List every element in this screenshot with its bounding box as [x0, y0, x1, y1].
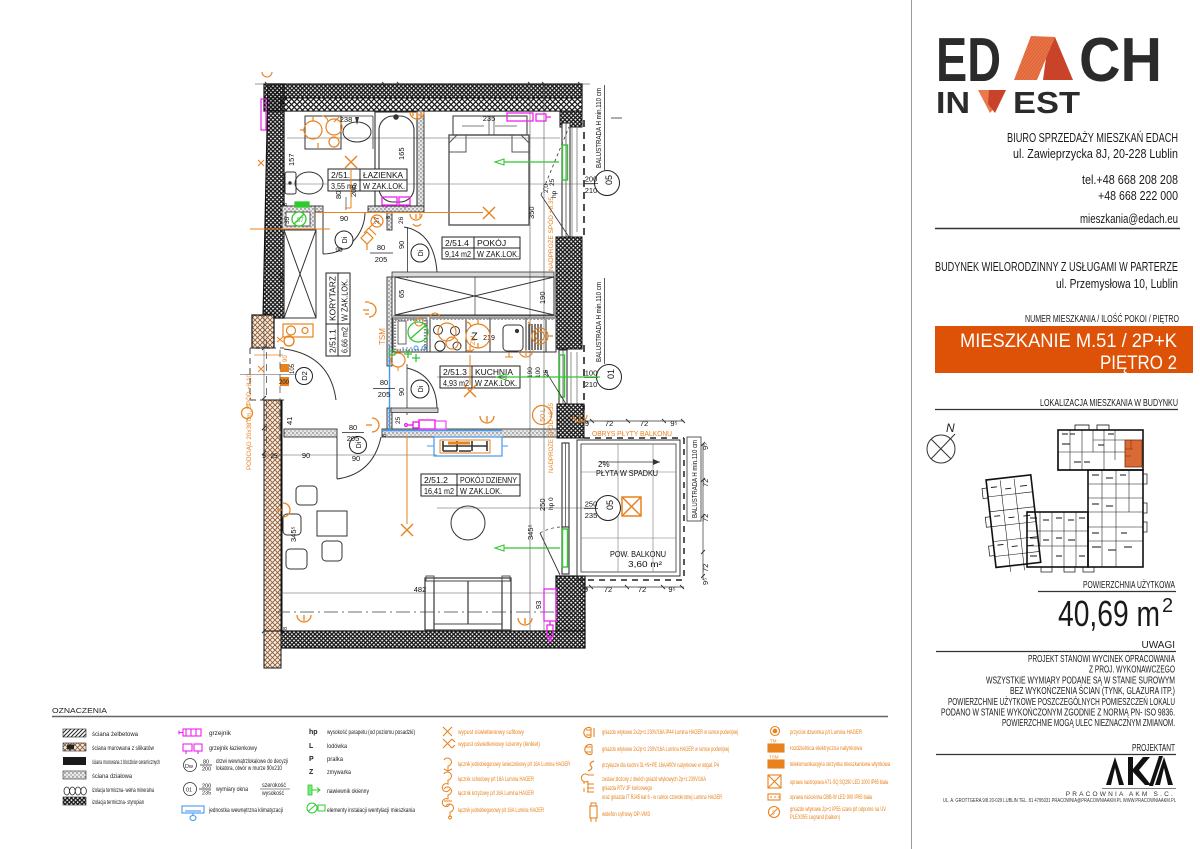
svg-text:25: 25 — [270, 453, 278, 460]
svg-text:gniazdo wtykowe 2p+z IP55 szar: gniazdo wtykowe 2p+z IP55 szare p/t odpo… — [790, 807, 886, 813]
svg-text:UWAGI: UWAGI — [1141, 640, 1175, 651]
svg-text:80: 80 — [349, 423, 357, 432]
svg-text:POWIERZCHNIE UŻYTKOWE POSZCZEG: POWIERZCHNIE UŻYTKOWE POSZCZEGÓLNYCH POM… — [948, 695, 1175, 708]
svg-text:2/51.2: 2/51.2 — [424, 475, 448, 485]
svg-text:POW. BALKONU: POW. BALKONU — [610, 550, 666, 559]
svg-text:PROJEKT STANOWI WYCINEK OPRACO: PROJEKT STANOWI WYCINEK OPRACOWANIA — [1028, 654, 1175, 665]
svg-text:tel.+48 668 208 208: tel.+48 668 208 208 — [1082, 172, 1178, 187]
svg-text:IN: IN — [936, 85, 970, 120]
svg-text:72: 72 — [701, 479, 710, 487]
svg-text:gniazdo wtykowe 2x2p+z 230V/16: gniazdo wtykowe 2x2p+z 230V/16A Lumina H… — [602, 747, 729, 753]
svg-text:zmywarka: zmywarka — [327, 770, 352, 776]
svg-text:9⁵: 9⁵ — [668, 585, 675, 594]
svg-text:105: 105 — [290, 363, 296, 374]
svg-text:235: 235 — [483, 114, 496, 123]
svg-text:93: 93 — [534, 601, 543, 609]
svg-text:ZM: ZM — [470, 336, 477, 345]
svg-text:TM: TM — [770, 739, 777, 744]
svg-text:3,60 m²: 3,60 m² — [628, 560, 662, 569]
svg-text:KORYTARZ: KORYTARZ — [328, 276, 338, 321]
svg-text:wymiary okna: wymiary okna — [215, 787, 248, 793]
svg-text:W ZAK.LOK.: W ZAK.LOK. — [475, 378, 517, 388]
svg-text:drzwi wewnątrzlokalowe do decy: drzwi wewnątrzlokalowe do decyzji — [216, 759, 288, 765]
svg-text:oraz gniazda IT RJ45 kat 6 - w: oraz gniazda IT RJ45 kat 6 - w ramce czt… — [602, 795, 722, 801]
svg-text:65: 65 — [397, 290, 406, 298]
svg-text:POKÓJ: POKÓJ — [477, 238, 506, 248]
svg-text:80: 80 — [380, 378, 388, 387]
svg-text:345⁵: 345⁵ — [289, 526, 298, 542]
svg-text:200: 200 — [279, 380, 290, 386]
svg-text:6,66 m2: 6,66 m2 — [340, 327, 350, 353]
svg-text:350: 350 — [527, 206, 536, 219]
svg-text:72: 72 — [605, 419, 613, 428]
svg-text:9,14 m2: 9,14 m2 — [445, 249, 471, 259]
svg-text:80: 80 — [334, 191, 343, 199]
svg-text:ŁAZIENKA: ŁAZIENKA — [363, 170, 403, 180]
svg-text:ul. Przemysłowa 10, Lublin: ul. Przemysłowa 10, Lublin — [1056, 276, 1178, 291]
svg-text:gniazdo wtykowe 2x2p+z 230V/16: gniazdo wtykowe 2x2p+z 230V/16A IP44 Lum… — [602, 730, 738, 736]
svg-text:72: 72 — [604, 585, 612, 594]
svg-text:pralka: pralka — [327, 757, 344, 763]
svg-text:przyłącze dla kuchni 3L+N+PE 1: przyłącze dla kuchni 3L+N+PE 16A/400V na… — [602, 763, 719, 769]
svg-text:235: 235 — [585, 511, 598, 520]
svg-text:01: 01 — [186, 788, 192, 794]
svg-text:235: 235 — [202, 791, 211, 797]
svg-text:KUCHNIA: KUCHNIA — [475, 367, 513, 377]
svg-text:100: 100 — [535, 367, 542, 378]
svg-text:MIESZKANIE M.51 / 2P+K: MIESZKANIE M.51 / 2P+K — [960, 331, 1177, 352]
svg-text:nawiewnik okienny: nawiewnik okienny — [327, 789, 369, 795]
svg-text:8: 8 — [283, 627, 289, 630]
svg-text:90: 90 — [302, 451, 310, 460]
svg-text:25: 25 — [543, 369, 550, 377]
svg-text:P: P — [309, 756, 314, 763]
svg-text:W ZAK.LOK.: W ZAK.LOK. — [340, 279, 350, 321]
svg-text:72: 72 — [640, 419, 648, 428]
svg-text:190: 190 — [538, 291, 547, 304]
svg-text:9⁵: 9⁵ — [670, 419, 677, 428]
svg-text:telekomunikacyjna skrzynka mie: telekomunikacyjna skrzynka mieszkaniowa … — [790, 762, 890, 768]
svg-text:3: 3 — [772, 811, 775, 817]
svg-text:EST: EST — [1013, 85, 1080, 120]
svg-text:345⁵: 345⁵ — [526, 524, 535, 540]
svg-text:NADPROŻE SPÓD +8,35: NADPROŻE SPÓD +8,35 — [546, 197, 555, 271]
svg-text:Z PROJ. WYKONAWCZEGO: Z PROJ. WYKONAWCZEGO — [1089, 665, 1175, 676]
svg-text:CH: CH — [1079, 26, 1162, 95]
svg-text:190: 190 — [527, 367, 534, 378]
svg-text:Di: Di — [418, 249, 425, 256]
svg-text:BALUSTRADA H min.110 cm: BALUSTRADA H min.110 cm — [690, 440, 699, 518]
svg-text:05: 05 — [604, 175, 614, 185]
svg-text:NADPROŻE SPÓD +8,35: NADPROŻE SPÓD +8,35 — [546, 403, 555, 473]
svg-text:TSM: TSM — [769, 755, 779, 760]
svg-text:Di: Di — [342, 236, 349, 243]
svg-text:PŁYTA W SPADKU: PŁYTA W SPADKU — [596, 469, 658, 478]
svg-text:hp: hp — [551, 190, 558, 198]
svg-text:wysokość: wysokość — [261, 791, 284, 797]
svg-text:01: 01 — [606, 369, 616, 379]
svg-text:grzejnik łazienkowy: grzejnik łazienkowy — [209, 746, 257, 752]
svg-text:widefon cyfrowy OP-VM3: widefon cyfrowy OP-VM3 — [601, 812, 650, 818]
svg-text:łącznik schodowy p/t 16A Lumi: łącznik schodowy p/t 16A Lumina HAGER — [458, 777, 534, 783]
svg-text:2/51.: 2/51. — [331, 170, 350, 180]
svg-text:WSZYSTKIE WYMIARY PODANE SĄ W: WSZYSTKIE WYMIARY PODANE SĄ W STANIE SUR… — [986, 675, 1175, 686]
svg-text:238: 238 — [340, 115, 353, 124]
svg-text:oprawa nastropowa A71-SQ SQ290: oprawa nastropowa A71-SQ SQ290 LED 1000 … — [790, 780, 888, 786]
svg-text:Di: Di — [418, 385, 425, 392]
svg-text:8: 8 — [283, 203, 289, 206]
svg-text:ul. Zawieprzycka 8J, 20-228 Lu: ul. Zawieprzycka 8J, 20-228 Lublin — [1013, 146, 1178, 161]
svg-text:41: 41 — [285, 417, 294, 425]
svg-text:izolacja termiczna- styropian: izolacja termiczna- styropian — [92, 800, 144, 806]
svg-text:50 L: 50 L — [540, 408, 547, 422]
svg-text:8: 8 — [386, 216, 392, 219]
svg-text:BALUSTRADA H min.110 cm: BALUSTRADA H min.110 cm — [594, 88, 603, 168]
svg-text:rozdzielnica elektryczna natyn: rozdzielnica elektryczna natynkowa — [790, 746, 863, 752]
svg-text:lodówka: lodówka — [327, 744, 348, 750]
svg-text:16,41 m2: 16,41 m2 — [424, 486, 454, 496]
svg-text:72: 72 — [638, 585, 646, 594]
svg-text:40,69 m: 40,69 m — [1058, 593, 1160, 634]
svg-text:210: 210 — [585, 186, 598, 195]
svg-text:250: 250 — [585, 500, 598, 509]
svg-text:80: 80 — [203, 760, 209, 766]
svg-text:PRACOWNIA AKM S.C.: PRACOWNIA AKM S.C. — [1066, 791, 1175, 798]
svg-text:BALUSTRADA H min.110 cm: BALUSTRADA H min.110 cm — [594, 282, 603, 362]
svg-text:POWIERZCHNIE MOGĄ ULEC NIEZNAC: POWIERZCHNIE MOGĄ ULEC NIEZNACZNYM ZMIAN… — [1002, 718, 1175, 729]
svg-text:+48 668 222 000: +48 668 222 000 — [1098, 188, 1178, 203]
svg-text:205: 205 — [349, 184, 358, 197]
svg-text:72: 72 — [701, 564, 710, 572]
svg-text:9⁵: 9⁵ — [701, 443, 710, 450]
svg-text:OZNACZENIA: OZNACZENIA — [52, 706, 107, 715]
svg-text:PROJEKTANT: PROJEKTANT — [1132, 743, 1175, 754]
svg-text:Z: Z — [309, 769, 314, 776]
svg-text:80: 80 — [377, 243, 385, 252]
svg-text:ściana murowana z silikatów: ściana murowana z silikatów — [92, 746, 155, 752]
svg-text:205: 205 — [347, 434, 360, 443]
svg-text:NUMER MIESZKANIA / ILOŚĆ POKOI: NUMER MIESZKANIA / ILOŚĆ POKOI / PIĘTRO — [1025, 312, 1179, 325]
svg-text:205: 205 — [375, 255, 388, 264]
svg-text:9⁵: 9⁵ — [701, 578, 710, 585]
svg-text:27: 27 — [374, 216, 381, 224]
svg-text:165: 165 — [397, 147, 406, 160]
svg-text:wypust oświetleniowy sufitowy: wypust oświetleniowy sufitowy — [457, 730, 524, 736]
svg-text:35: 35 — [284, 216, 291, 224]
svg-text:łącznik jednobiegunowy p/t 16A: łącznik jednobiegunowy p/t 16A Lumina HA… — [458, 808, 544, 814]
svg-text:25: 25 — [395, 416, 402, 424]
svg-text:W ZAK.LOK.: W ZAK.LOK. — [460, 486, 502, 496]
svg-text:2%: 2% — [598, 460, 610, 469]
svg-text:157: 157 — [287, 153, 296, 166]
svg-text:PODANO W STANIE WYKOŃCZONYM ZG: PODANO W STANIE WYKOŃCZONYM ZGODNIE Z NO… — [941, 706, 1175, 719]
svg-text:LOKALIZACJA MIESZKANIA W BUDYN: LOKALIZACJA MIESZKANIA W BUDYNKU — [1040, 398, 1178, 409]
svg-text:wypust oświetleniowy ścienny (: wypust oświetleniowy ścienny (kinkiet) — [457, 742, 540, 748]
svg-text:BIURO SPRZEDAŻY MIESZKAŃ EDACH: BIURO SPRZEDAŻY MIESZKAŃ EDACH — [1007, 130, 1178, 145]
svg-text:2/51.4: 2/51.4 — [445, 238, 469, 248]
svg-text:26: 26 — [398, 216, 405, 224]
svg-text:łącznik jednobiegunowy świeczn: łącznik jednobiegunowy świecznikowy p/t … — [458, 762, 570, 768]
svg-text:8: 8 — [382, 434, 388, 437]
svg-text:57: 57 — [297, 218, 304, 224]
svg-text:ściana żelbetowa: ściana żelbetowa — [92, 732, 139, 738]
svg-text:90: 90 — [283, 355, 289, 362]
svg-text:łącznik krzyżowy p/t 16A Lumi: łącznik krzyżowy p/t 16A Lumina HAGER — [458, 791, 534, 797]
svg-text:90: 90 — [352, 454, 360, 463]
svg-text:wysokość parapetu (od poziomu: wysokość parapetu (od poziomu posadzki) — [326, 730, 415, 736]
svg-text:100: 100 — [585, 369, 598, 378]
svg-text:210: 210 — [585, 380, 598, 389]
svg-text:200: 200 — [585, 175, 598, 184]
svg-text:90: 90 — [397, 241, 406, 249]
svg-text:grzejnik: grzejnik — [209, 731, 232, 737]
svg-text:lokatora, otwór w murze 90x210: lokatora, otwór w murze 90x210 — [216, 766, 283, 772]
svg-text:przycisk dzwonka p/t Lumina HA: przycisk dzwonka p/t Lumina HAGER — [790, 730, 862, 736]
svg-text:2/51.3: 2/51.3 — [443, 367, 467, 377]
svg-text:W ZAK.LOK.: W ZAK.LOK. — [477, 249, 519, 259]
svg-text:72: 72 — [701, 514, 710, 522]
svg-text:zestaw złożony z dwóch gniazd: zestaw złożony z dwóch gniazd wtykowych … — [602, 777, 706, 783]
svg-text:Dw: Dw — [185, 764, 193, 770]
svg-text:25: 25 — [549, 178, 556, 186]
svg-text:PLEX055 Legrand (balkon): PLEX055 Legrand (balkon) — [790, 815, 840, 821]
svg-text:elementy instalacji wentylacji: elementy instalacji wentylacji mieszkani… — [327, 808, 416, 814]
svg-text:2/51.1: 2/51.1 — [328, 329, 338, 353]
svg-text:200: 200 — [202, 784, 211, 790]
svg-text:BUDYNEK WIELORODZINNY Z USŁUGA: BUDYNEK WIELORODZINNY Z USŁUGAMI W PARTE… — [935, 259, 1178, 274]
svg-text:TSM: TSM — [378, 328, 387, 345]
svg-text:250: 250 — [538, 498, 547, 511]
svg-text:N: N — [946, 421, 955, 435]
svg-text:mieszkania@edach.eu: mieszkania@edach.eu — [1080, 211, 1178, 226]
svg-text:90: 90 — [340, 214, 348, 223]
svg-text:BEZ WYKOŃCZENIA ŚCIAN (TYNK, G: BEZ WYKOŃCZENIA ŚCIAN (TYNK, GLAZURA ITP… — [1010, 684, 1175, 697]
svg-text:ściana murowana z bloczków cer: ściana murowana z bloczków ceramicznych — [92, 760, 160, 766]
svg-text:izolacja termiczna- wełna mine: izolacja termiczna- wełna mineralna — [92, 788, 154, 794]
svg-text:oprawa naścienna OBB-W LED 900: oprawa naścienna OBB-W LED 900 IP65 biał… — [790, 795, 872, 801]
svg-text:L: L — [309, 743, 314, 750]
svg-text:hp 0: hp 0 — [548, 497, 555, 510]
svg-text:2: 2 — [1162, 595, 1173, 617]
svg-text:W ZAK.LOK.: W ZAK.LOK. — [363, 181, 405, 191]
svg-text:200: 200 — [202, 767, 211, 773]
svg-text:OBRYS PŁYTY BALKONU: OBRYS PŁYTY BALKONU — [592, 431, 672, 438]
svg-text:POKÓJ DZIENNY: POKÓJ DZIENNY — [460, 475, 517, 485]
svg-text:szerokość: szerokość — [262, 783, 286, 789]
svg-text:ściana działowa: ściana działowa — [92, 774, 133, 780]
svg-text:POWIERZCHNIA UŻYTKOWA: POWIERZCHNIA UŻYTKOWA — [1083, 578, 1175, 591]
svg-text:jednostka wewnętrzna klimatyza: jednostka wewnętrzna klimatyzacji — [208, 808, 283, 814]
svg-text:UL. A. GROTTGERA 9/8 20-029 L: UL. A. GROTTGERA 9/8 20-029 LUBLIN TEL. … — [943, 798, 1176, 804]
svg-text:gniazda RTV 3F końcowego: gniazda RTV 3F końcowego — [602, 786, 652, 792]
svg-text:194: 194 — [277, 272, 286, 285]
svg-text:205: 205 — [378, 390, 391, 399]
svg-text:05: 05 — [605, 500, 615, 510]
svg-text:90: 90 — [335, 247, 343, 254]
svg-text:482: 482 — [414, 585, 427, 594]
svg-text:PODCIĄG 20x38 cm, SPÓD +8,10: PODCIĄG 20x38 cm, SPÓD +8,10 — [244, 374, 253, 470]
svg-text:D2: D2 — [300, 371, 309, 381]
svg-text:hp: hp — [309, 729, 318, 736]
svg-text:PIĘTRO 2: PIĘTRO 2 — [1100, 353, 1177, 374]
svg-text:90: 90 — [397, 388, 406, 396]
